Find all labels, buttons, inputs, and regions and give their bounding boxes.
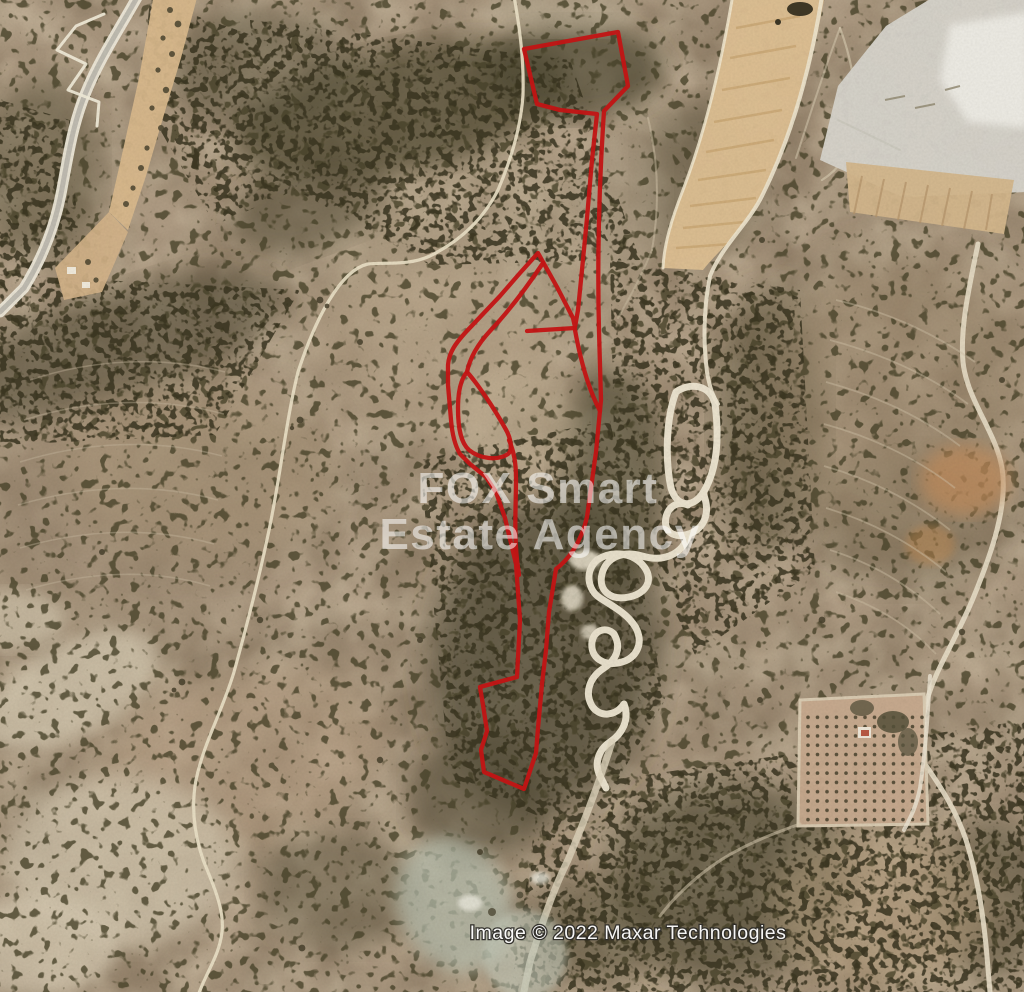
watermark-line-2: Estate Agency (379, 510, 700, 559)
satellite-map-viewport[interactable]: FOX Smart Estate Agency Image © 2022 Max… (0, 0, 1024, 992)
watermark-line-1: FOX Smart (418, 464, 659, 513)
parcel-boundary-sail-bottom (527, 328, 575, 331)
satellite-imagery: FOX Smart Estate Agency Image © 2022 Max… (0, 0, 1024, 992)
attribution-text: Image © 2022 Maxar Technologies (470, 922, 787, 944)
